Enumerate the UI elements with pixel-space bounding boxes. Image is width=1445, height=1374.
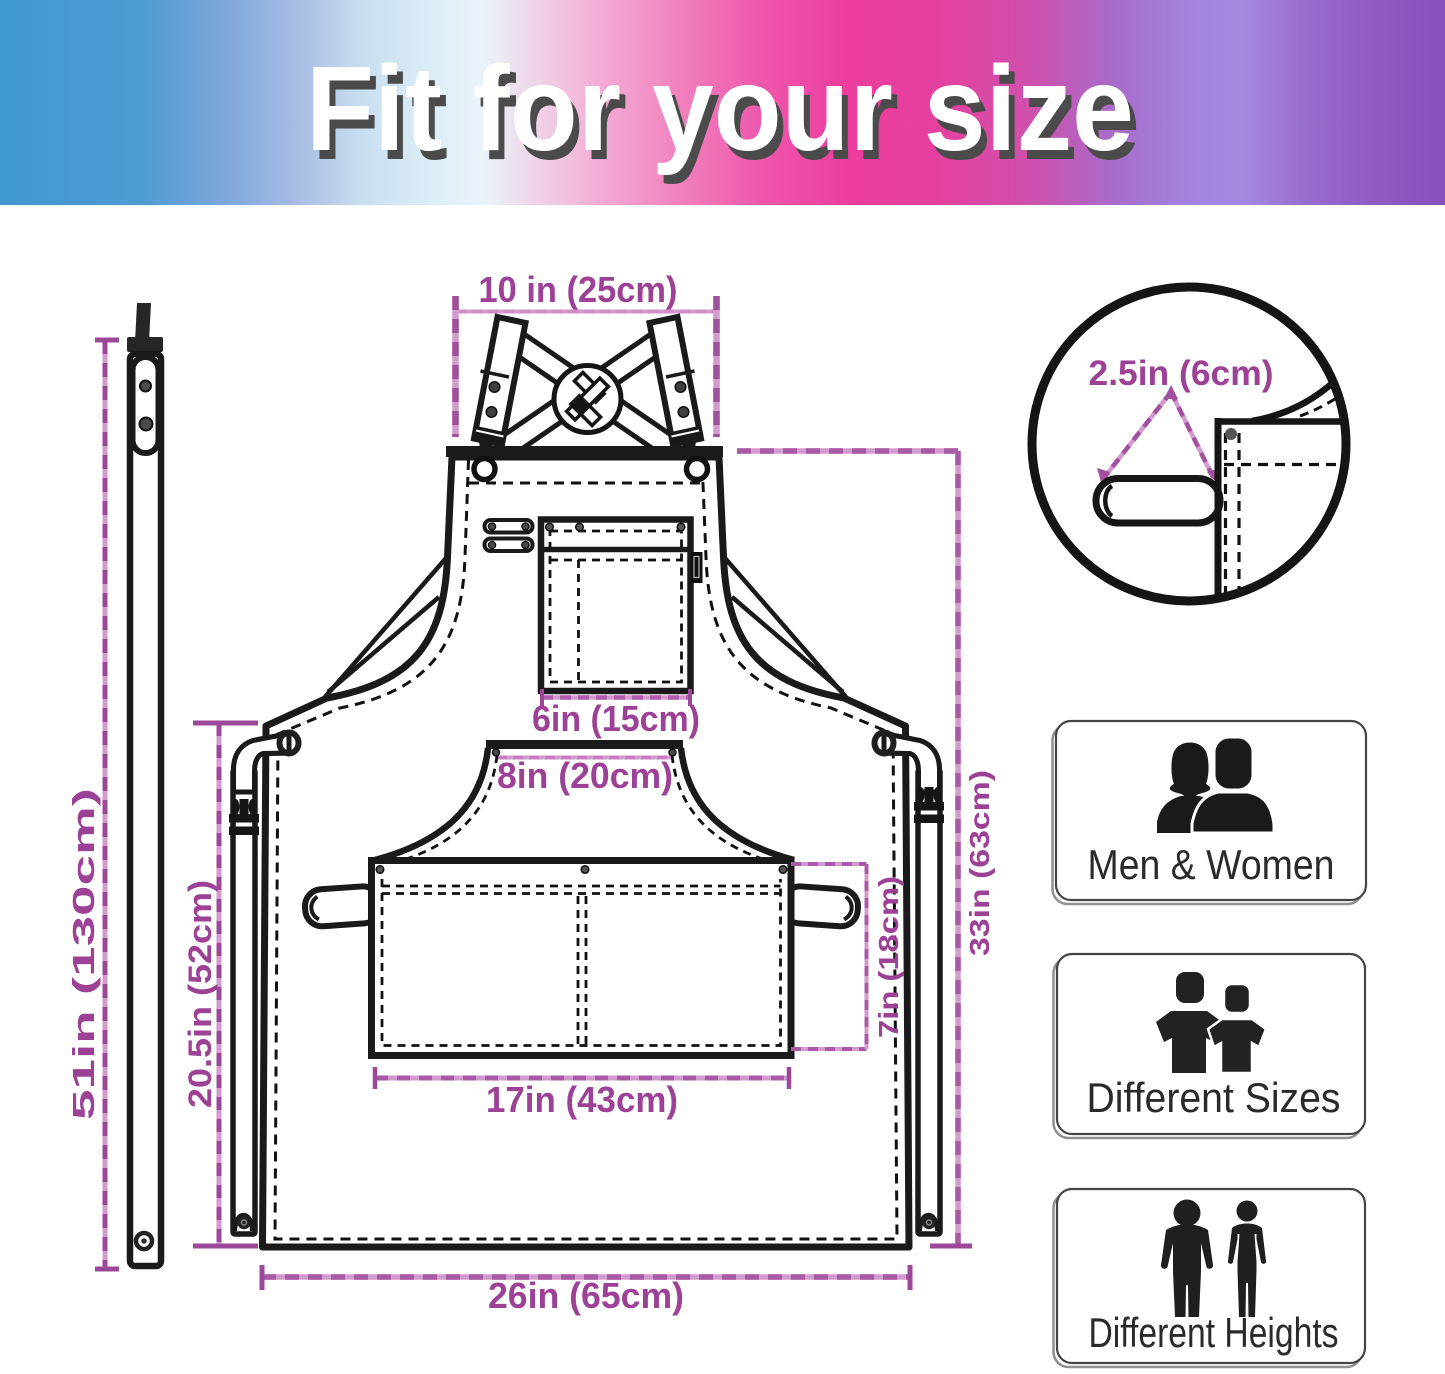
svg-text:Men & Women: Men & Women <box>1088 841 1335 888</box>
svg-text:26in (65cm): 26in (65cm) <box>488 1275 684 1316</box>
svg-text:20.5in (52cm): 20.5in (52cm) <box>182 880 218 1108</box>
svg-text:17in (43cm): 17in (43cm) <box>486 1079 678 1120</box>
svg-text:7in (18cm): 7in (18cm) <box>873 876 904 1038</box>
svg-text:6in (15cm): 6in (15cm) <box>532 698 700 739</box>
svg-text:51in (130cm): 51in (130cm) <box>66 788 101 1120</box>
svg-text:Different Sizes: Different Sizes <box>1087 1074 1341 1121</box>
svg-text:10 in (25cm): 10 in (25cm) <box>479 269 678 310</box>
svg-text:Different Heights: Different Heights <box>1089 1309 1339 1356</box>
svg-text:2.5in (6cm): 2.5in (6cm) <box>1089 354 1274 393</box>
svg-text:33in (63cm): 33in (63cm) <box>964 770 995 956</box>
svg-text:Fit for your size: Fit for your size <box>306 40 1134 176</box>
svg-text:8in (20cm): 8in (20cm) <box>497 755 673 796</box>
